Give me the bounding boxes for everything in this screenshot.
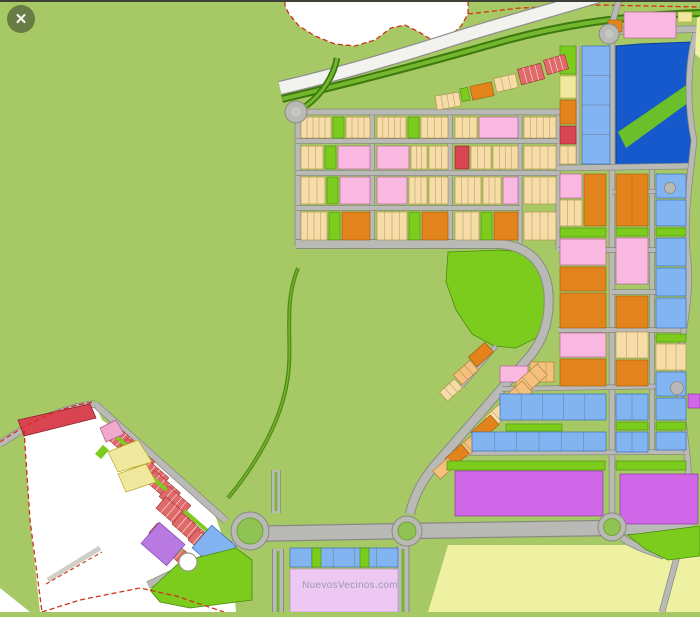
parcel [688, 394, 700, 408]
parcel [301, 177, 325, 204]
parcel [656, 200, 686, 226]
parcel [524, 146, 556, 169]
parcel [455, 212, 479, 240]
roundabout [398, 522, 416, 540]
parcel [455, 177, 481, 204]
roundabout [179, 553, 197, 571]
parcel-watermarked [290, 569, 398, 612]
parcel [338, 146, 370, 169]
parcel [472, 432, 606, 451]
parcel [560, 267, 606, 291]
parcel [342, 212, 370, 240]
parcel [421, 117, 448, 138]
parcel [678, 12, 692, 22]
parcel [377, 177, 407, 204]
parcel [616, 432, 648, 452]
parcel [483, 177, 501, 204]
parcel [500, 394, 606, 420]
parcel [616, 394, 648, 420]
roundabout [671, 382, 684, 395]
park-strip [333, 117, 344, 138]
park-strip [327, 177, 338, 204]
parcel [455, 471, 603, 516]
park-strip [656, 228, 686, 236]
parcel [493, 146, 518, 169]
parcel [494, 212, 518, 240]
parcel [524, 212, 556, 240]
parcel [616, 174, 648, 226]
parcel [656, 238, 686, 266]
park-strip [312, 548, 321, 567]
park-strip [408, 117, 419, 138]
parcel [377, 212, 407, 240]
parcel [560, 100, 576, 124]
parcel [301, 212, 327, 240]
parcel [560, 359, 606, 386]
parcel [340, 177, 370, 204]
parcel [455, 146, 469, 169]
parcel [471, 146, 491, 169]
park-strip [656, 334, 686, 342]
parcel [429, 146, 448, 169]
map-wrap: NuevosVecinos.com [0, 0, 700, 612]
parcel [584, 174, 606, 226]
parcel [503, 177, 518, 204]
parcel [624, 12, 676, 38]
park-strip [329, 212, 340, 240]
parcel [656, 298, 686, 328]
parcel [301, 146, 323, 169]
parcel [560, 76, 576, 98]
parcel [377, 146, 409, 169]
park-strip [656, 422, 686, 430]
parcel [656, 268, 686, 296]
parcel [620, 474, 698, 524]
parcel [656, 398, 686, 420]
roundabout [237, 518, 263, 544]
park-strip [447, 461, 605, 470]
park-strip [560, 228, 606, 237]
park-strip [616, 228, 648, 236]
park-strip [409, 212, 420, 240]
parcel [524, 117, 556, 138]
close-icon: ✕ [15, 12, 28, 27]
close-button[interactable]: ✕ [7, 5, 35, 33]
parcel [616, 238, 648, 284]
parcel [411, 146, 427, 169]
parcel [616, 332, 648, 358]
park-strip [616, 422, 648, 430]
parcel [616, 360, 648, 386]
parcel [429, 177, 448, 204]
parcel [290, 548, 398, 567]
road [452, 452, 688, 453]
roundabout [665, 183, 676, 194]
park-strip [506, 424, 562, 431]
park-strip [325, 146, 336, 169]
parcel [346, 117, 370, 138]
parcel [560, 293, 606, 328]
parcel [524, 177, 556, 204]
parcel [409, 177, 427, 204]
image-viewer: NuevosVecinos.com ✕ [0, 0, 700, 612]
parcel [582, 46, 610, 164]
parcel [560, 333, 606, 357]
parcel [377, 117, 406, 138]
parcel [455, 117, 477, 138]
parcel [560, 200, 582, 226]
parcel [560, 239, 606, 265]
road [558, 166, 694, 168]
parcel [422, 212, 448, 240]
parcel [560, 126, 576, 144]
parcel [656, 432, 686, 450]
parcel [301, 117, 331, 138]
park-strip [360, 548, 369, 567]
parcel [656, 344, 686, 370]
roundabout [291, 107, 301, 117]
parcel [560, 174, 582, 198]
park-strip [616, 461, 686, 470]
roundabout [605, 30, 614, 39]
master-plan-map [0, 0, 700, 612]
window-top-border [0, 0, 700, 2]
roundabout [604, 519, 621, 536]
park-strip [481, 212, 492, 240]
parcel [616, 296, 648, 328]
parcel [560, 146, 576, 164]
parcel [479, 117, 518, 138]
